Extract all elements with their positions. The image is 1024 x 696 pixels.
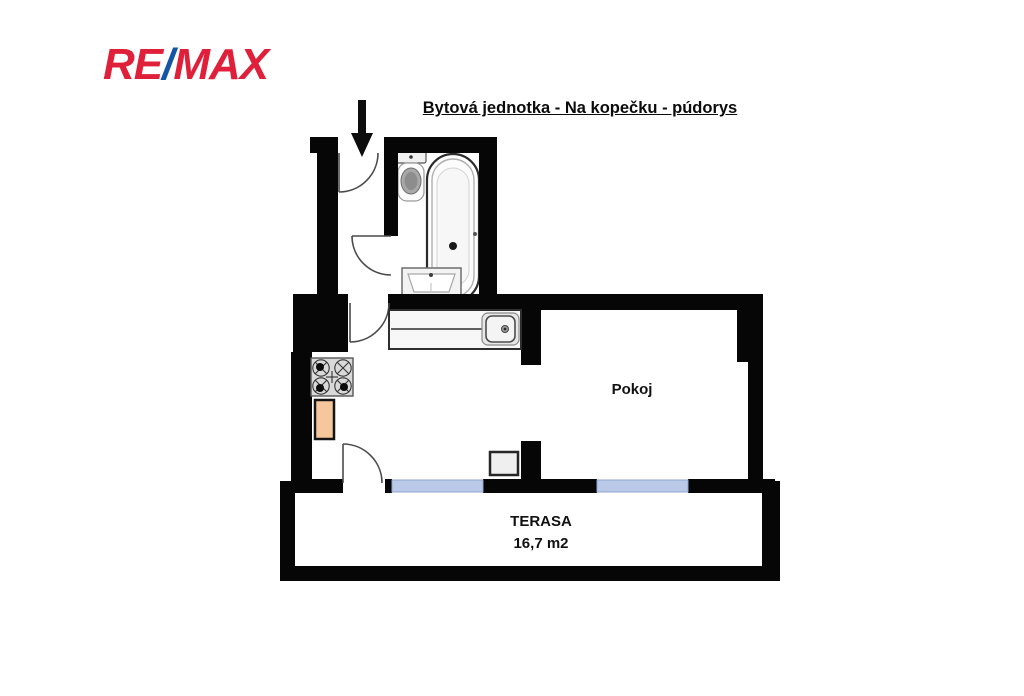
washbasin-icon [402,268,461,298]
terrace-name: TERASA [461,511,621,533]
room-label-terasa: TERASA 16,7 m2 [461,511,621,555]
entry-door [339,153,378,192]
entrance-arrow-icon [351,100,373,157]
terrace-door [343,444,382,483]
terrace-window-left [392,480,483,492]
stove-icon [311,358,353,396]
cabinet [315,400,334,439]
kitchen-sink-icon [482,313,519,345]
floorplan-drawing [0,0,1024,696]
floorplan-page: RE/MAX Bytová jednotka - Na kopečku - pú… [0,0,1024,696]
terrace-window-right [597,480,688,492]
hall-room-door [350,303,389,342]
room-label-pokoj: Pokoj [572,381,692,398]
toilet-icon [396,151,426,201]
terrace-area: 16,7 m2 [461,533,621,555]
bathroom-door [352,236,391,275]
furniture-block [490,452,518,475]
